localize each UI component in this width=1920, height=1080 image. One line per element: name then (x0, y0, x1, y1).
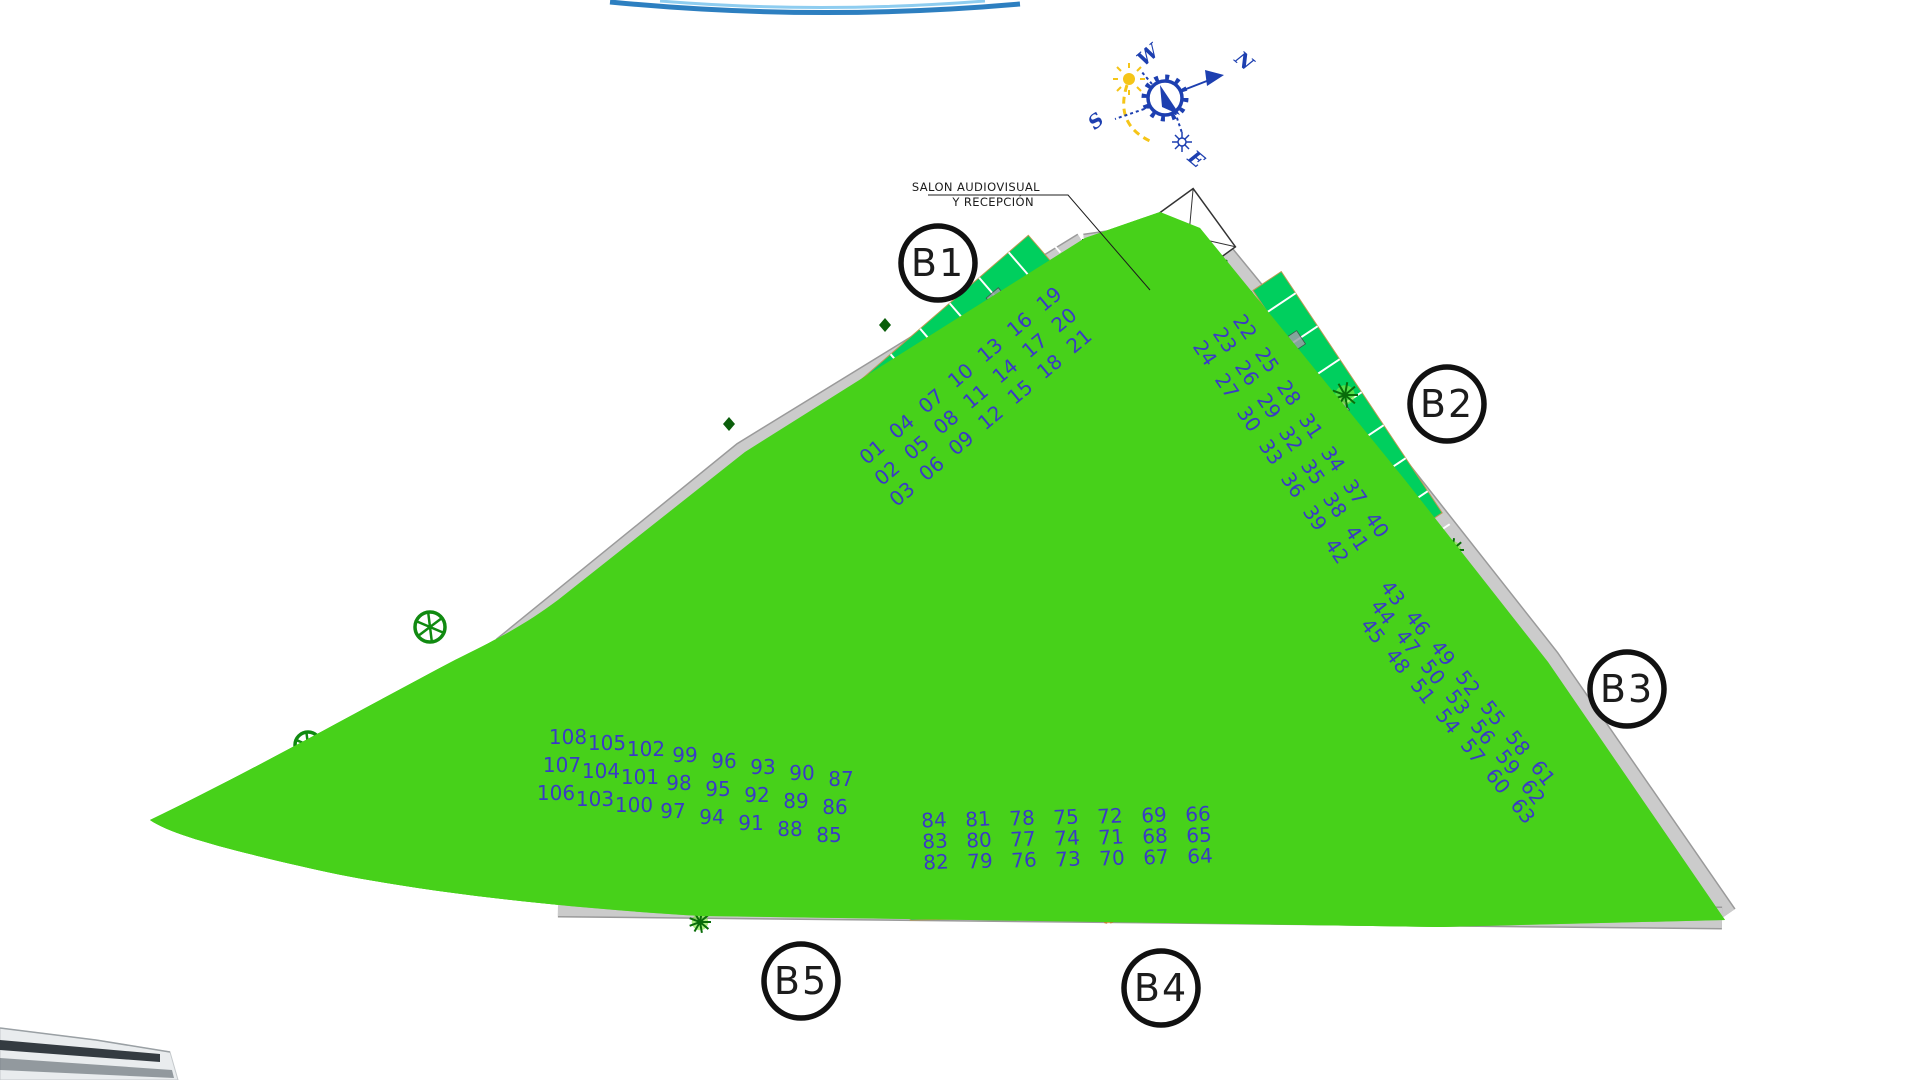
unit-number[interactable]: 104 (582, 759, 620, 783)
block-label-text: B1 (911, 241, 965, 285)
east-star-icon (1172, 132, 1192, 152)
unit-number[interactable]: 79 (967, 848, 994, 873)
reception-label-line2: Y RECEPCIÓN (951, 194, 1034, 209)
tree-icon (415, 612, 445, 642)
unit-number[interactable]: 64 (1187, 843, 1214, 868)
block-label-text: B4 (1134, 966, 1188, 1010)
sun-icon (1113, 63, 1145, 95)
unit-number[interactable]: 92 (744, 783, 769, 807)
compass-s: S (1084, 109, 1109, 135)
unit-number[interactable]: 97 (660, 799, 685, 823)
compass-w: W (1133, 39, 1165, 71)
reception-label-line1: SALON AUDIOVISUAL (912, 180, 1040, 194)
block-label-b5[interactable]: B5 (764, 944, 838, 1018)
unit-number[interactable]: 105 (588, 731, 626, 755)
block-label-text: B5 (774, 959, 828, 1003)
entrance-diamond-icon (723, 417, 735, 431)
unit-number[interactable]: 101 (621, 765, 659, 789)
top-swoosh (610, 1, 1020, 13)
unit-number[interactable]: 91 (738, 811, 763, 835)
site-plan-svg: PETANCA PING-PONG GIMNASIA CHILDREN GAME… (0, 0, 1920, 1080)
compass-rose: W N S E (1084, 39, 1258, 173)
unit-number[interactable]: 107 (543, 753, 581, 777)
unit-number[interactable]: 88 (777, 817, 802, 841)
block-label-b3[interactable]: B3 (1590, 652, 1664, 726)
compass-n: N (1229, 47, 1258, 76)
unit-number[interactable]: 93 (750, 755, 775, 779)
unit-number[interactable]: 67 (1143, 844, 1170, 869)
compass-e: E (1182, 146, 1208, 173)
unit-number[interactable]: 87 (828, 767, 853, 791)
unit-number[interactable]: 106 (537, 781, 575, 805)
unit-number[interactable]: 103 (576, 787, 614, 811)
unit-number[interactable]: 94 (699, 805, 724, 829)
site-plan-page: PETANCA PING-PONG GIMNASIA CHILDREN GAME… (0, 0, 1920, 1080)
photo-fragment (0, 1028, 178, 1080)
unit-number[interactable]: 86 (822, 795, 847, 819)
unit-number[interactable]: 95 (705, 777, 730, 801)
unit-number[interactable]: 102 (627, 737, 665, 761)
unit-number[interactable]: 89 (783, 789, 808, 813)
entrance-diamond-icon (879, 318, 891, 332)
north-arrow (1205, 70, 1224, 86)
block-label-text: B3 (1600, 667, 1654, 711)
unit-number[interactable]: 99 (672, 743, 697, 767)
unit-number[interactable]: 90 (789, 761, 814, 785)
block-label-b1[interactable]: B1 (901, 226, 975, 300)
unit-number[interactable]: 100 (615, 793, 653, 817)
unit-number[interactable]: 70 (1099, 845, 1126, 870)
unit-number[interactable]: 98 (666, 771, 691, 795)
unit-number[interactable]: 96 (711, 749, 736, 773)
block-label-b2[interactable]: B2 (1410, 367, 1484, 441)
unit-number[interactable]: 73 (1055, 846, 1082, 871)
unit-number[interactable]: 76 (1011, 847, 1038, 872)
unit-number[interactable]: 108 (549, 725, 587, 749)
unit-number[interactable]: 82 (923, 849, 950, 874)
unit-number[interactable]: 85 (816, 823, 841, 847)
block-label-b4[interactable]: B4 (1124, 951, 1198, 1025)
block-label-text: B2 (1420, 382, 1474, 426)
